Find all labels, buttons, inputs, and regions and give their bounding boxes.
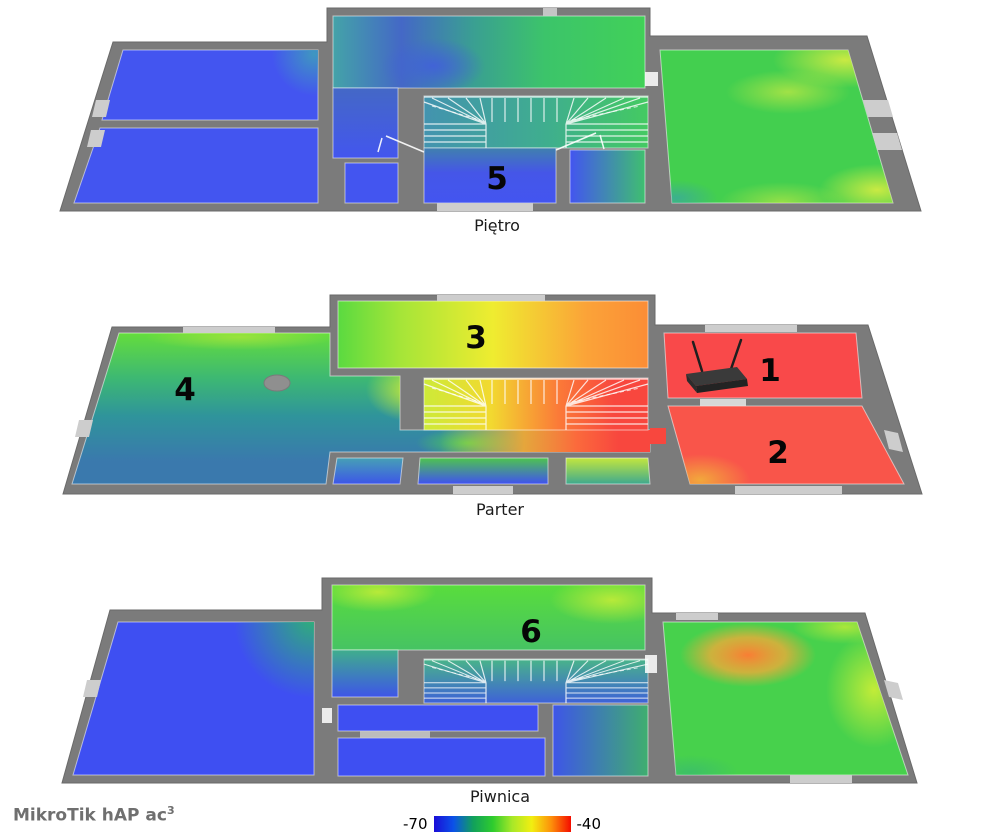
door-gap-left	[322, 708, 332, 723]
small-room-right-area	[570, 150, 645, 203]
room-marker-6: 6	[520, 614, 542, 650]
ap-model-text: MikroTik hAP ac	[13, 806, 167, 826]
room-marker-2: 2	[767, 435, 789, 471]
rooms-piwnica	[73, 570, 922, 789]
door-gap	[645, 72, 658, 86]
room-marker-1: 1	[759, 353, 781, 389]
wifi-heatmap-canvas: 5 Piętro	[0, 0, 1000, 837]
corridor-strip-basement-area	[332, 650, 398, 697]
floor-label-piwnica: Piwnica	[470, 787, 530, 806]
door-gap-rooms12	[700, 399, 746, 406]
floor-label-parter: Parter	[476, 500, 524, 519]
stairwell-piwnica-area	[424, 659, 648, 703]
small-room-bottom-1-area	[333, 458, 403, 484]
floor-label-pietro: Piętro	[474, 216, 520, 235]
small-room-left-area	[345, 163, 398, 203]
corridor-strip-area	[333, 88, 398, 158]
legend-max-label: -40	[577, 815, 602, 833]
ap-model-label: MikroTik hAP ac3	[13, 804, 175, 826]
ap-model-sup: 3	[167, 804, 175, 817]
small-room-bottom-3-area	[566, 458, 650, 484]
room-marker-4: 4	[174, 372, 196, 408]
legend-gradient-bar	[434, 816, 571, 832]
door-gap-red	[650, 428, 666, 444]
floor-plan-piwnica: 6 Piwnica	[0, 570, 1000, 812]
floor-plan-pietro: 5 Piętro	[0, 0, 1000, 245]
room-middle-top-area	[333, 16, 645, 88]
column-marker	[264, 375, 290, 391]
stairwell-parter-area	[424, 378, 648, 430]
room-3-area	[338, 301, 648, 368]
room-lower-left-area	[74, 128, 318, 203]
signal-legend: -70 -40	[403, 815, 601, 833]
room-marker-3: 3	[465, 320, 487, 356]
basement-room-b1-area	[338, 705, 538, 731]
stairwell-pietro-area	[424, 96, 648, 148]
legend-min-label: -70	[403, 815, 428, 833]
small-room-bottom-2-area	[418, 458, 548, 484]
basement-room-b3-area	[553, 705, 648, 776]
floor-plan-parter: 3 4 1 2 Parter	[0, 280, 1000, 525]
heat-blue-spot	[381, 38, 485, 94]
basement-room-b2-area	[338, 738, 545, 776]
room-marker-5: 5	[486, 161, 508, 197]
